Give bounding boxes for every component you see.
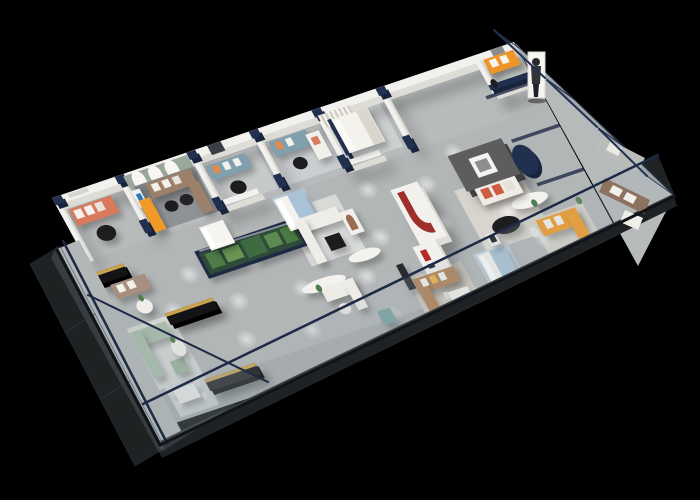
showroom-render [0, 0, 700, 500]
person-head [532, 58, 540, 66]
aquarium-glass-sheen [200, 222, 293, 251]
glass-and-edges-overlay [0, 0, 700, 500]
person-shadow [528, 99, 546, 104]
person-legs [533, 84, 539, 97]
